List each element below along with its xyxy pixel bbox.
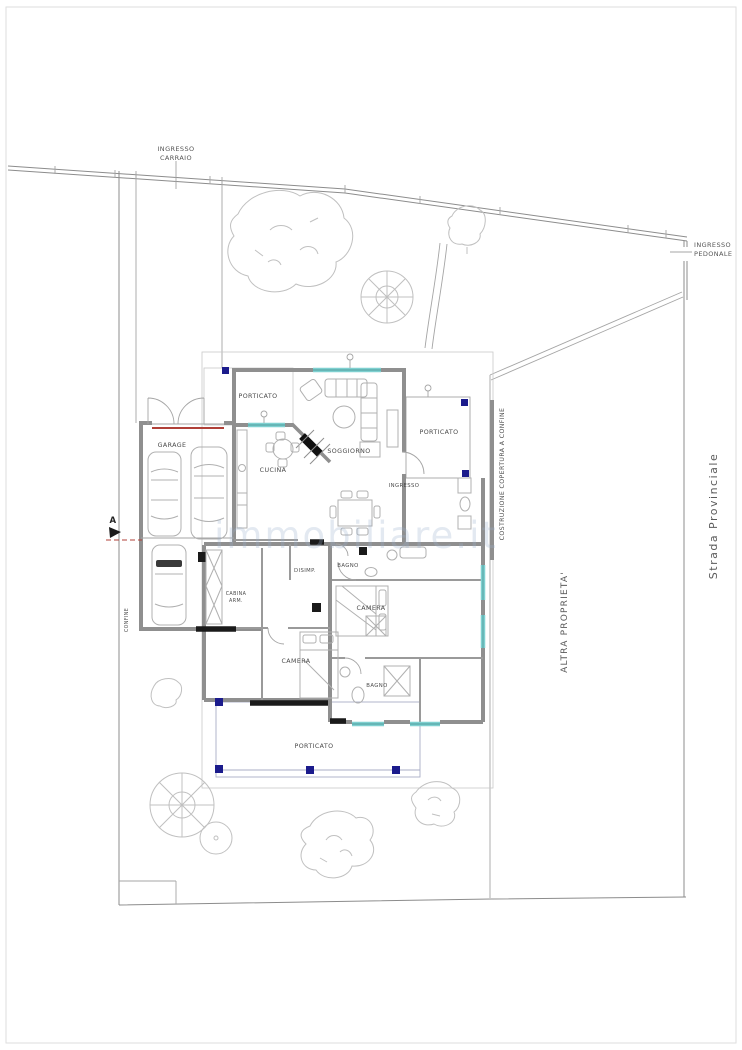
site-plan-drawing: A immobiliare.it INGRESSO CARRAIO INGRES… xyxy=(0,0,742,1050)
section-letter: A xyxy=(110,516,117,526)
label-ingresso-pedonale-2: PEDONALE xyxy=(694,250,732,258)
label-disimpegno: DISIMP. xyxy=(294,568,316,574)
sofa xyxy=(325,379,377,441)
tree-radial-north xyxy=(361,271,413,323)
label-ingresso-pedonale-1: INGRESSO xyxy=(694,241,731,249)
label-bagno-2: BAGNO xyxy=(366,683,387,689)
leader-lines xyxy=(176,161,692,252)
label-cabina-1: CABINA xyxy=(226,591,247,597)
tv-unit xyxy=(387,410,398,447)
label-camera-2: CAMERA xyxy=(282,658,311,665)
label-soggiorno: SOGGIORNO xyxy=(327,448,370,455)
label-cucina: CUCINA xyxy=(260,467,287,474)
rug xyxy=(333,406,355,428)
kitchen-table xyxy=(266,432,299,467)
label-porticato-est: PORTICATO xyxy=(420,429,459,436)
tree-small-northeast xyxy=(448,206,485,254)
label-ingresso-carraio-2: CARRAIO xyxy=(160,154,192,162)
label-porticato-sud: PORTICATO xyxy=(295,743,334,750)
section-marker: A xyxy=(106,516,142,540)
wardrobe-cabina xyxy=(206,550,222,624)
plan-sheet: A immobiliare.it INGRESSO CARRAIO INGRES… xyxy=(0,0,742,1050)
label-camera-1: CAMERA xyxy=(357,605,386,612)
bed-single xyxy=(300,632,338,698)
label-strada-provinciale: Strada Provinciale xyxy=(707,453,720,579)
car-3 xyxy=(152,545,186,625)
watermark: immobiliare.it xyxy=(214,514,498,557)
tree-large-north xyxy=(228,190,353,291)
car-1 xyxy=(148,452,181,536)
tree-large-south xyxy=(301,811,374,878)
porch-south-outline xyxy=(216,702,420,777)
label-costruzione-copertura: COSTRUZIONE COPERTURA A CONFINE xyxy=(499,408,506,541)
label-ingresso-room: INGRESSO xyxy=(389,483,420,489)
label-garage: GARAGE xyxy=(158,442,187,449)
label-bagno-1: BAGNO xyxy=(337,563,358,569)
porch-east-outline xyxy=(406,397,470,478)
armchair xyxy=(299,378,323,401)
label-altra-proprieta: ALTRA PROPRIETA' xyxy=(560,571,570,673)
label-confine: CONFINE xyxy=(124,608,130,632)
label-cabina-2: ARM. xyxy=(229,598,243,604)
shrub-west xyxy=(151,679,182,708)
tree-circle-southwest xyxy=(200,822,232,854)
label-porticato-nord: PORTICATO xyxy=(239,393,278,400)
label-ingresso-carraio-1: INGRESSO xyxy=(157,145,194,153)
